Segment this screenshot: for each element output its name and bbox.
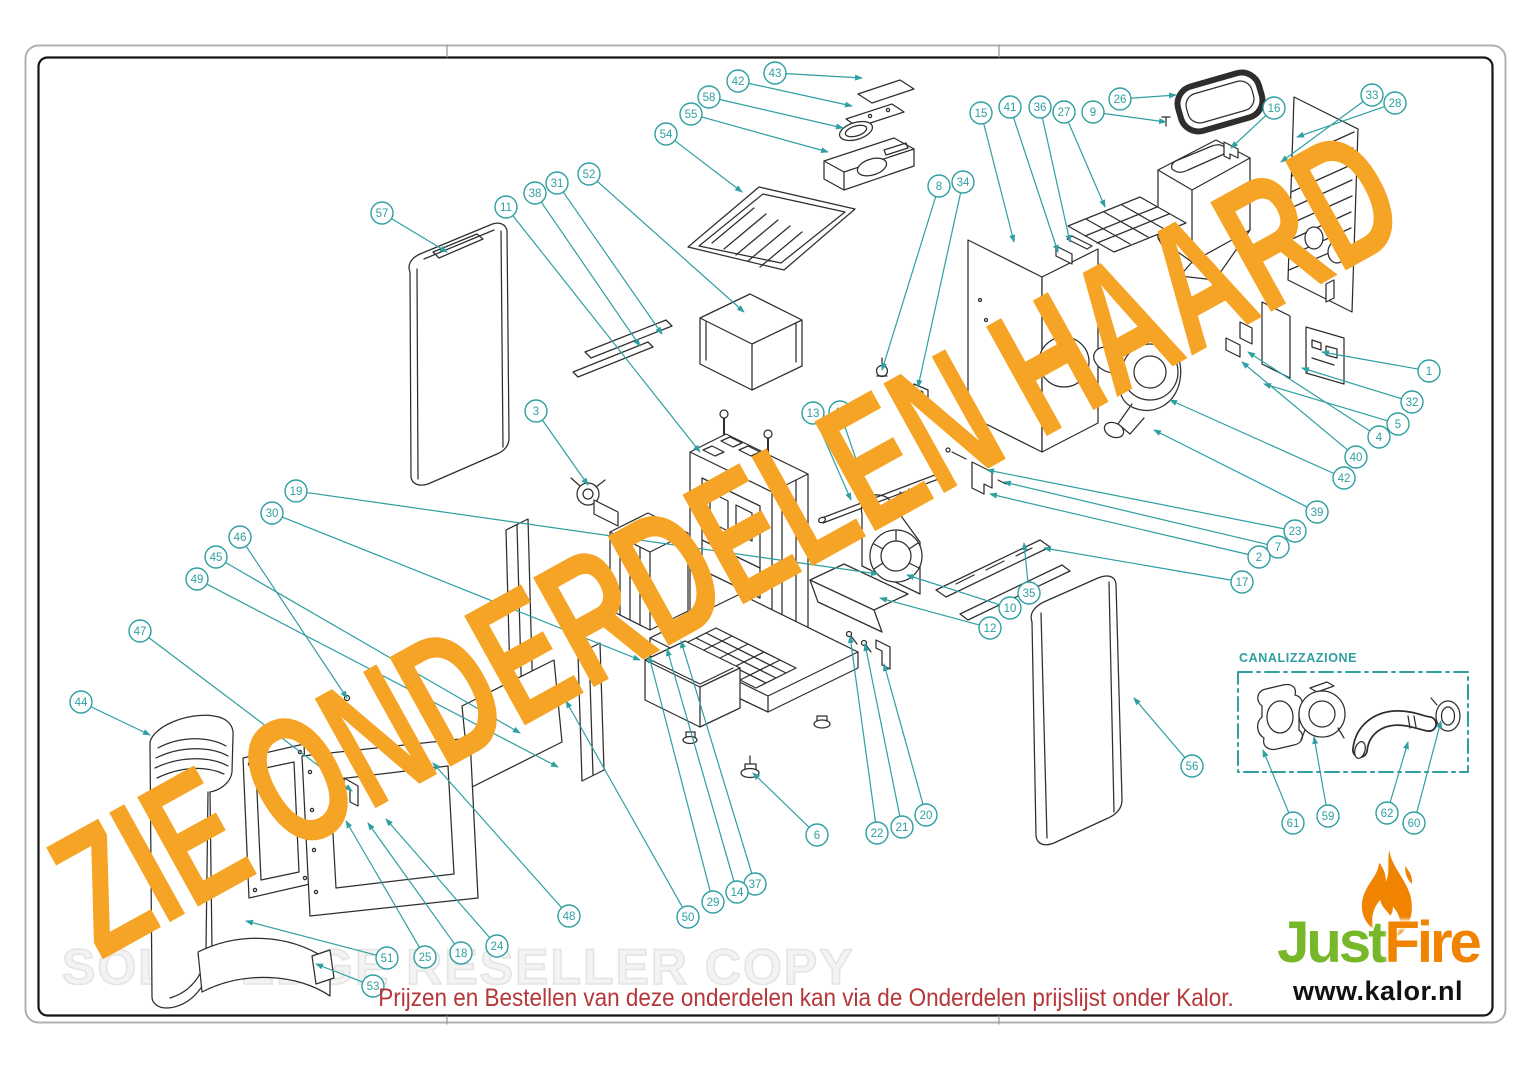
svg-text:51: 51 bbox=[381, 953, 394, 965]
part-left-side-panel bbox=[409, 223, 509, 485]
part-duct-hose bbox=[1353, 716, 1429, 760]
callout-38: 38 bbox=[524, 182, 640, 346]
part-display-panel bbox=[824, 138, 914, 190]
brand-just: Just bbox=[1277, 910, 1384, 975]
canalizzazione-label: CANALIZZAZIONE bbox=[1239, 651, 1357, 665]
svg-text:57: 57 bbox=[376, 208, 389, 220]
svg-text:20: 20 bbox=[920, 810, 933, 822]
callout-61: 61 bbox=[1263, 750, 1304, 834]
svg-text:9: 9 bbox=[1090, 107, 1096, 119]
svg-text:16: 16 bbox=[1268, 103, 1281, 115]
callout-42: 42 bbox=[1170, 400, 1355, 489]
brand-wordmark: JustFire bbox=[1248, 914, 1508, 972]
callout-40: 40 bbox=[1242, 362, 1367, 468]
svg-text:29: 29 bbox=[707, 897, 720, 909]
svg-text:37: 37 bbox=[749, 879, 762, 891]
svg-text:10: 10 bbox=[1004, 603, 1017, 615]
svg-text:44: 44 bbox=[75, 697, 88, 709]
website-url: www.kalor.nl bbox=[1248, 976, 1508, 1007]
callout-54: 54 bbox=[655, 123, 742, 192]
svg-text:60: 60 bbox=[1408, 818, 1421, 830]
svg-text:11: 11 bbox=[500, 202, 512, 214]
svg-text:34: 34 bbox=[957, 177, 970, 189]
brand-fire: Fire bbox=[1384, 910, 1478, 975]
svg-text:35: 35 bbox=[1023, 588, 1036, 600]
svg-text:30: 30 bbox=[266, 508, 279, 520]
svg-text:52: 52 bbox=[583, 169, 596, 181]
callout-56: 56 bbox=[1134, 698, 1203, 777]
svg-text:62: 62 bbox=[1381, 808, 1394, 820]
svg-text:19: 19 bbox=[290, 486, 303, 498]
part-duct-blower bbox=[1299, 682, 1345, 740]
svg-text:58: 58 bbox=[703, 92, 716, 104]
svg-text:59: 59 bbox=[1322, 811, 1335, 823]
svg-text:55: 55 bbox=[685, 109, 698, 121]
callout-6: 6 bbox=[753, 773, 828, 846]
callout-57: 57 bbox=[371, 202, 447, 252]
svg-text:4: 4 bbox=[1376, 432, 1383, 444]
svg-text:23: 23 bbox=[1289, 526, 1302, 538]
callout-3: 3 bbox=[525, 400, 588, 485]
svg-text:47: 47 bbox=[134, 626, 147, 638]
svg-text:5: 5 bbox=[1395, 419, 1401, 431]
callout-44: 44 bbox=[70, 691, 150, 735]
callout-39: 39 bbox=[1154, 430, 1328, 523]
svg-text:43: 43 bbox=[769, 68, 782, 80]
part-top-grill bbox=[688, 187, 855, 270]
callout-20: 20 bbox=[884, 664, 937, 826]
svg-text:50: 50 bbox=[682, 912, 695, 924]
part-hopper-gasket bbox=[1173, 68, 1266, 135]
svg-text:1: 1 bbox=[1426, 366, 1432, 378]
part-trim-strips bbox=[573, 320, 672, 377]
svg-text:25: 25 bbox=[419, 952, 432, 964]
svg-text:12: 12 bbox=[984, 623, 997, 635]
svg-text:41: 41 bbox=[1004, 102, 1017, 114]
svg-text:54: 54 bbox=[660, 129, 673, 141]
svg-text:3: 3 bbox=[533, 406, 539, 418]
svg-text:45: 45 bbox=[210, 552, 223, 564]
svg-text:42: 42 bbox=[732, 76, 745, 88]
svg-text:26: 26 bbox=[1114, 94, 1127, 106]
svg-text:31: 31 bbox=[551, 178, 564, 190]
callout-41: 41 bbox=[999, 96, 1058, 252]
svg-text:24: 24 bbox=[491, 941, 504, 953]
callout-17: 17 bbox=[1044, 548, 1253, 593]
svg-text:33: 33 bbox=[1366, 90, 1379, 102]
justfire-logo: JustFire www.kalor.nl bbox=[1248, 852, 1508, 1012]
svg-text:8: 8 bbox=[936, 181, 942, 193]
svg-text:32: 32 bbox=[1406, 397, 1419, 409]
svg-text:56: 56 bbox=[1186, 761, 1199, 773]
svg-text:15: 15 bbox=[975, 108, 988, 120]
svg-text:49: 49 bbox=[191, 574, 204, 586]
svg-text:7: 7 bbox=[1275, 542, 1281, 554]
svg-text:22: 22 bbox=[871, 828, 884, 840]
svg-text:48: 48 bbox=[563, 911, 576, 923]
svg-text:2: 2 bbox=[1256, 552, 1262, 564]
callout-2: 2 bbox=[990, 494, 1270, 568]
svg-text:27: 27 bbox=[1058, 107, 1071, 119]
svg-text:28: 28 bbox=[1389, 98, 1402, 110]
svg-text:40: 40 bbox=[1350, 452, 1363, 464]
callout-31: 31 bbox=[546, 172, 662, 334]
svg-text:14: 14 bbox=[731, 887, 744, 899]
svg-text:36: 36 bbox=[1034, 102, 1047, 114]
svg-text:21: 21 bbox=[896, 822, 909, 834]
part-upper-chamber-box bbox=[700, 294, 802, 390]
callout-42: 42 bbox=[727, 70, 852, 106]
svg-text:61: 61 bbox=[1287, 818, 1300, 830]
callout-59: 59 bbox=[1314, 737, 1339, 827]
callout-55: 55 bbox=[680, 103, 828, 152]
part-duct-gasket bbox=[1258, 684, 1303, 749]
callout-26: 26 bbox=[1109, 88, 1176, 110]
page: SOLID EDGE RESELLER COPY bbox=[0, 0, 1531, 1085]
svg-text:6: 6 bbox=[814, 830, 820, 842]
callout-60: 60 bbox=[1403, 721, 1441, 834]
svg-text:38: 38 bbox=[529, 188, 542, 200]
callout-15: 15 bbox=[970, 102, 1014, 242]
svg-text:17: 17 bbox=[1236, 577, 1249, 589]
callout-62: 62 bbox=[1376, 742, 1408, 824]
canalizzazione-inset bbox=[1238, 672, 1468, 772]
svg-text:42: 42 bbox=[1338, 473, 1351, 485]
svg-text:39: 39 bbox=[1311, 507, 1324, 519]
part-right-side-panel bbox=[1031, 576, 1122, 845]
part-hopper-lid bbox=[837, 80, 914, 144]
svg-text:46: 46 bbox=[234, 532, 247, 544]
svg-text:18: 18 bbox=[455, 948, 468, 960]
callout-43: 43 bbox=[764, 62, 862, 84]
